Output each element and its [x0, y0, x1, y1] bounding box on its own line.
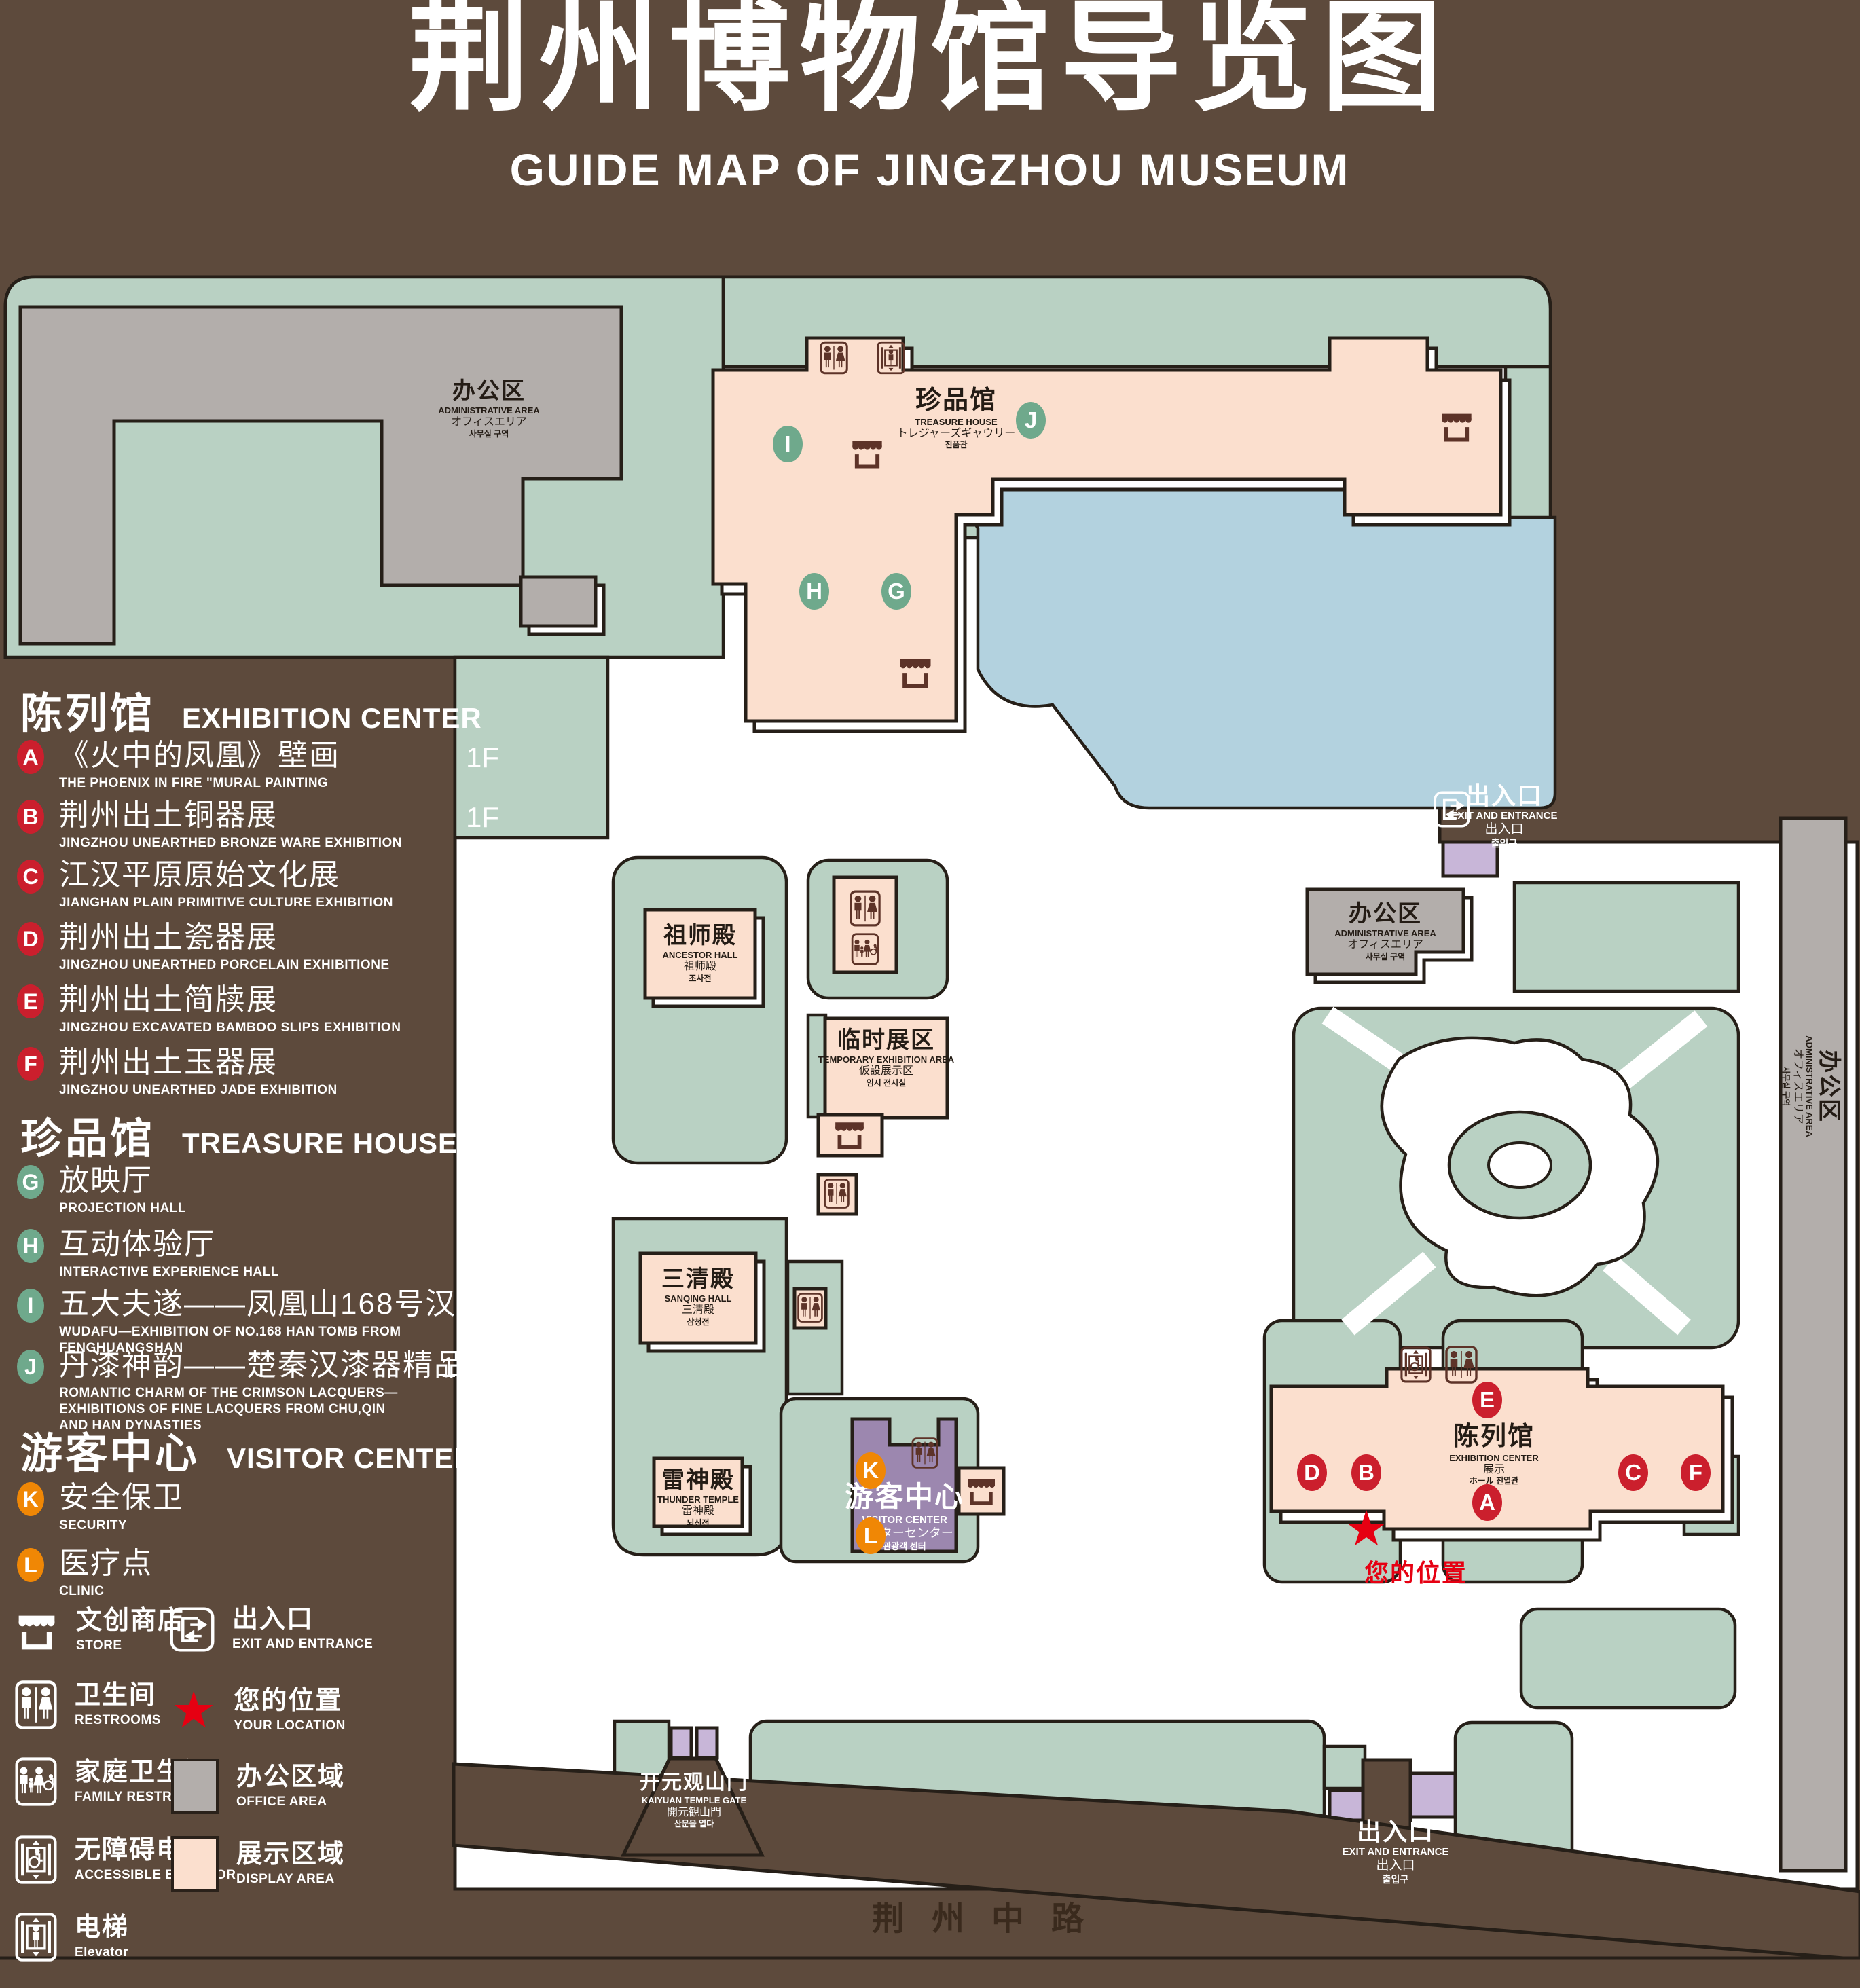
- map-restroom-icon-temp: [824, 1178, 850, 1209]
- map-restroom-icon-sanqing: [797, 1292, 823, 1323]
- map-badge-a[interactable]: A: [1472, 1484, 1502, 1521]
- map-store-icon-visitor: [965, 1476, 998, 1506]
- floor-j: 1-2F: [441, 1351, 499, 1384]
- lawn-park-upper: [1514, 883, 1738, 991]
- legend-symbol-display-area: 展示区域 DISPLAY AREA: [171, 1836, 345, 1892]
- label-sanqing-hall: 三清殿SANQING HALL 三清殿삼청전: [661, 1266, 735, 1327]
- floor-l: 1F: [466, 1549, 499, 1582]
- label-admin-area-right: 办公区ADMINISTRATIVE AREA オフィスエリア사무실 구역: [1334, 900, 1436, 961]
- exit-bottom-building-right: [1409, 1773, 1455, 1817]
- map-accessible-elevator-icon-exhibition: [1400, 1346, 1432, 1383]
- building-admin-far-right: [1781, 818, 1846, 1871]
- map-store-icon-temp: [833, 1119, 867, 1150]
- label-admin-area-top-left: 办公区ADMINISTRATIVE AREA オフィスエリア사무실 구역: [438, 378, 540, 439]
- office-area-swatch: [171, 1759, 219, 1814]
- legend-item-l[interactable]: L 医疗点 CLINIC 1F: [17, 1548, 499, 1600]
- legend-item-e[interactable]: E 荆州出土简牍展 JINGZHOU EXCAVATED BAMBOO SLIP…: [17, 984, 499, 1036]
- badge-f: F: [17, 1047, 44, 1081]
- map-store-icon-treasure-2: [1439, 410, 1474, 443]
- exit-icon: [170, 1607, 215, 1652]
- map-badge-f[interactable]: F: [1681, 1454, 1711, 1491]
- legend-symbol-office-area: 办公区域 OFFICE AREA: [171, 1759, 345, 1814]
- legend-item-d[interactable]: D 荆州出土瓷器展 JINGZHOU UNEARTHED PORCELAIN E…: [17, 922, 499, 974]
- lawn-ancestor-ring: [613, 858, 786, 1163]
- restroom-icon: [15, 1676, 57, 1734]
- legend-item-i[interactable]: I 五大夫遂——凤凰山168号汉墓展 WUDAFU—EXHIBITION OF …: [17, 1289, 499, 1357]
- legend-section-visitor-center: 游客中心 VISITOR CENTER: [20, 1419, 475, 1480]
- badge-d: D: [17, 922, 44, 956]
- gate-pillar-right: [697, 1728, 717, 1758]
- guide-map-page: 荆州博物馆导览图 GUIDE MAP OF JINGZHOU MUSEUM 陈列…: [0, 0, 1860, 1988]
- badge-h: H: [17, 1229, 44, 1263]
- elevator-icon: [15, 1909, 57, 1965]
- floor-f: 2F: [466, 1048, 499, 1081]
- page-subtitle: GUIDE MAP OF JINGZHOU MUSEUM: [0, 144, 1860, 196]
- floor-g: 1F: [466, 1166, 499, 1199]
- map-badge-b[interactable]: B: [1351, 1454, 1381, 1491]
- legend-item-b[interactable]: B 荆州出土铜器展 JINGZHOU UNEARTHED BRONZE WARE…: [17, 800, 499, 851]
- label-jingzhou-middle-road: 荆州中路: [872, 1892, 1111, 1939]
- section-title-en: EXHIBITION CENTER: [182, 702, 482, 735]
- badge-a: A: [17, 740, 44, 774]
- label-thunder-temple: 雷神殿THUNDER TEMPLE 雷神殿뇌신전: [657, 1467, 739, 1528]
- road-footer: [0, 1958, 1860, 1988]
- page-title: 荆州博物馆导览图: [0, 0, 1860, 122]
- label-exhibition-center: 陈列馆EXHIBITION CENTER 展示ホール 진열관: [1449, 1422, 1538, 1486]
- map-badge-c[interactable]: C: [1618, 1454, 1648, 1491]
- legend-symbol-store: 文创商店 STORE: [15, 1608, 185, 1653]
- map-badge-k[interactable]: K: [856, 1452, 886, 1489]
- legend-item-c[interactable]: C 江汉平原原始文化展 JIANGHAN PLAIN PRIMITIVE CUL…: [17, 860, 499, 911]
- legend-section-treasure-house: 珍品馆 TREASURE HOUSE: [20, 1104, 458, 1165]
- label-treasure-house: 珍品馆TREASURE HOUSE トレジャーズギャウリー진품관: [897, 386, 1015, 450]
- map-badge-h[interactable]: H: [799, 573, 829, 610]
- map-restroom-icon-exhibition: [1445, 1346, 1478, 1384]
- your-location-star: ★: [1345, 1505, 1389, 1553]
- floor-h: 1F: [466, 1230, 499, 1263]
- floor-i: 2F: [466, 1290, 499, 1323]
- badge-i: I: [17, 1289, 44, 1323]
- legend-symbol-your-location: ★ 您的位置 YOUR LOCATION: [171, 1685, 346, 1735]
- label-temporary-exhibition: 临时展区TEMPORARY EXHIBITION AREA 仮設展示区임시 전시…: [818, 1027, 954, 1088]
- floor-e: 2F: [466, 986, 499, 1018]
- label-ancestor-hall: 祖师殿ANCESTOR HALL 祖师殿조사전: [663, 922, 738, 983]
- map-restroom-icon-visitor: [911, 1437, 938, 1469]
- section-title-zh: 陈列馆: [20, 679, 155, 740]
- map-badge-j[interactable]: J: [1016, 402, 1046, 439]
- location-star-icon: ★: [171, 1685, 216, 1735]
- legend-item-f[interactable]: F 荆州出土玉器展 JINGZHOU UNEARTHED JADE EXHIBI…: [17, 1047, 499, 1099]
- map-family-restroom-icon-central: [851, 933, 879, 965]
- label-exit-bottom: 出入口EXIT AND ENTRANCE 出入口출입구: [1343, 1817, 1449, 1885]
- family-restroom-icon: [15, 1754, 57, 1809]
- legend-item-k[interactable]: K 安全保卫 SECURITY 1F: [17, 1482, 499, 1534]
- legend-item-a[interactable]: A 《火中的凤凰》壁画 THE PHOENIX IN FIRE "MURAL P…: [17, 740, 499, 792]
- floor-k: 1F: [466, 1484, 499, 1516]
- map-exit-icon-top-right: [1434, 791, 1470, 828]
- legend-item-h[interactable]: H 互动体验厅 INTERACTIVE EXPERIENCE HALL 1F: [17, 1229, 499, 1281]
- floor-a: 1F: [466, 741, 499, 774]
- map-restroom-icon-treasure: [820, 341, 848, 375]
- map-restroom-icon-central: [850, 890, 881, 927]
- badge-g: G: [17, 1165, 44, 1199]
- accessible-elevator-icon: [15, 1832, 57, 1888]
- map-badge-i[interactable]: I: [773, 426, 803, 462]
- building-admin-annex: [521, 577, 596, 626]
- floor-d: 2F: [466, 923, 499, 956]
- label-admin-area-far-right: 办公区ADMINISTRATIVE AREA オフィスエリア사무실 구역: [1781, 1035, 1842, 1137]
- badge-b: B: [17, 800, 44, 834]
- badge-l: L: [17, 1548, 44, 1582]
- lawn-south-4: [1324, 1746, 1365, 1788]
- badge-e: E: [17, 984, 44, 1018]
- legend-symbol-exit: 出入口 EXIT AND ENTRANCE: [170, 1606, 373, 1652]
- floor-b: 1F: [466, 801, 499, 834]
- map-store-icon-treasure-3: [897, 655, 934, 689]
- map-badge-e[interactable]: E: [1472, 1382, 1502, 1418]
- map-elevator-icon-treasure: [877, 341, 905, 375]
- badge-c: C: [17, 860, 44, 894]
- lawn-southeast: [1521, 1609, 1735, 1708]
- legend-symbol-elevator: 电梯 Elevator: [15, 1909, 129, 1965]
- map-store-icon-treasure-1: [850, 437, 885, 470]
- legend-section-exhibition-center: 陈列馆 EXHIBITION CENTER: [20, 679, 482, 740]
- display-area-swatch: [171, 1836, 219, 1892]
- badge-k: K: [17, 1482, 44, 1516]
- your-location-label: 您的位置: [1364, 1553, 1467, 1589]
- map-badge-d[interactable]: D: [1297, 1454, 1327, 1491]
- gate-pillar-left: [671, 1728, 691, 1758]
- map-badge-g[interactable]: G: [881, 573, 911, 610]
- legend-item-g[interactable]: G 放映厅 PROJECTION HALL 1F: [17, 1165, 499, 1217]
- legend-symbol-restroom: 卫生间 RESTROOMS: [15, 1676, 161, 1734]
- badge-j: J: [17, 1350, 44, 1384]
- floor-c: 1F: [466, 861, 499, 894]
- store-icon: [15, 1611, 58, 1651]
- map-badge-l[interactable]: L: [856, 1517, 886, 1554]
- label-kaiyuan-gate: 开元观山门KAIYUAN TEMPLE GATE 開元観山門산문을 열다: [640, 1771, 748, 1828]
